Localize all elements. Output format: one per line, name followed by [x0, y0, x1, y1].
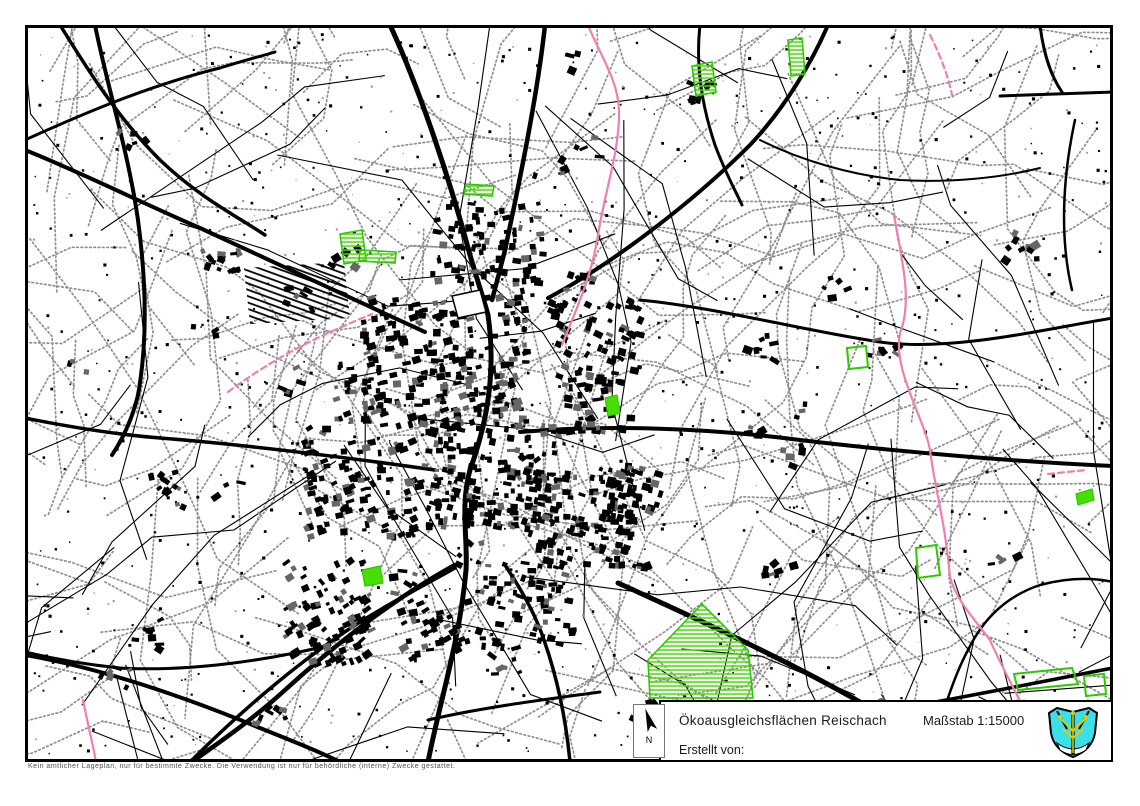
eco-area — [362, 566, 383, 586]
disclaimer-text: Kein amtlicher Lageplan, nur für bestimm… — [28, 763, 588, 770]
eco-area — [464, 184, 494, 196]
north-label: N — [646, 736, 653, 745]
title-block: Ökoausgleichsflächen Reischach Maßstab 1… — [659, 700, 1113, 762]
eco-area — [692, 62, 716, 96]
north-indicator: N — [633, 704, 665, 758]
eco-area — [359, 250, 396, 263]
eco-area — [605, 395, 620, 416]
map-canvas — [0, 0, 1140, 806]
map-title: Ökoausgleichsflächen Reischach — [679, 713, 887, 728]
eco-area — [788, 38, 805, 76]
highlighted-building — [452, 290, 486, 318]
north-arrow-icon — [638, 707, 660, 735]
map-scale: Maßstab 1:15000 — [923, 713, 1024, 728]
author-label: Erstellt von: — [679, 743, 744, 757]
map-document: N Ökoausgleichsflächen Reischach Maßstab… — [0, 0, 1140, 806]
coat-of-arms — [1045, 705, 1101, 759]
